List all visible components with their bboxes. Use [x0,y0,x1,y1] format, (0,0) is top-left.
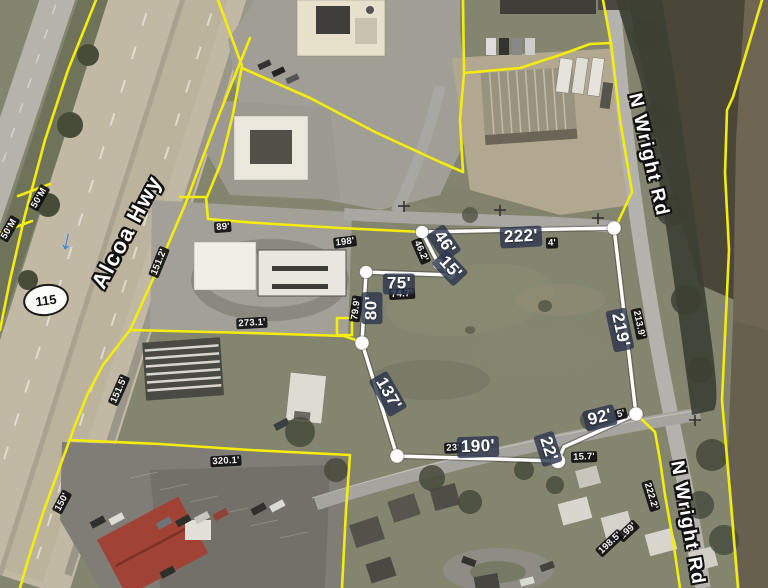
aerial-canvas [0,0,768,588]
building-small-white [286,372,327,424]
parcel-vertex-handle[interactable] [551,454,566,469]
building-gas-store [194,242,256,290]
building-striped [142,337,224,400]
parcel-vertex-handle[interactable] [433,259,444,270]
parcel-vertex-handle[interactable] [390,449,404,463]
map-viewport: Alcoa Hwy N Wright Rd N Wright Rd 115 ↓ … [0,0,768,588]
parcel-vertex-handle[interactable] [355,336,369,350]
gas-canopy [258,250,346,296]
parcel-vertex-handle[interactable] [360,266,373,279]
parcel-vertex-handle[interactable] [629,407,643,421]
parcel-vertex-handle[interactable] [607,221,621,235]
parcel-vertex-handle[interactable] [446,270,456,280]
parcel-vertex-handle[interactable] [416,226,429,239]
